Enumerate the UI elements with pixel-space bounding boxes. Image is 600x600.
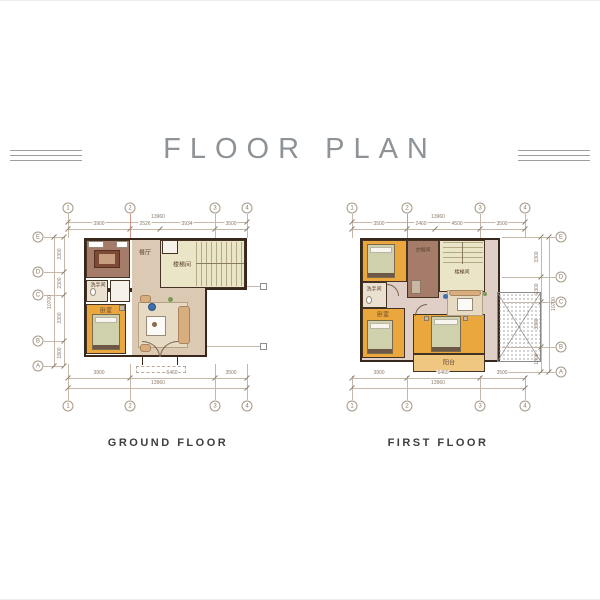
grid-marker: 4 [242, 401, 253, 412]
dimension-line [68, 388, 247, 389]
grid-marker: C [556, 297, 567, 308]
coffee-table [457, 298, 473, 311]
grid-marker: 1 [63, 401, 74, 412]
caption-ground-floor: GROUND FLOOR [88, 437, 248, 449]
plant [483, 292, 487, 296]
grid-marker: 4 [520, 401, 531, 412]
bed [92, 314, 120, 350]
dimension-line [502, 277, 555, 278]
bed [431, 316, 461, 352]
dimension-line [68, 378, 247, 379]
dimension-label: 3300 [57, 247, 63, 260]
grid-marker: 3 [475, 401, 486, 412]
grid-marker: A [33, 361, 44, 372]
dimension-label: 3500 [372, 221, 385, 227]
grid-marker: E [556, 232, 567, 243]
dimension-label: 13960 [150, 214, 166, 220]
first-floor-plan: 衣帽间 楼梯间 洗手间 卧室 阳台 [335, 192, 595, 427]
bed [367, 244, 395, 278]
stair-closet [162, 240, 178, 254]
dimension-label: 6460 [436, 370, 449, 376]
table-decor [152, 322, 157, 327]
sofa [178, 306, 190, 344]
top-border-line [0, 0, 600, 1]
toilet [90, 288, 96, 296]
grid-marker: D [556, 272, 567, 283]
dimension-label: 3300 [534, 317, 540, 330]
stair-treads [196, 242, 244, 286]
dimension-line [352, 229, 525, 230]
plant [168, 297, 173, 302]
leader-line [407, 376, 408, 400]
grid-marker: 1 [347, 401, 358, 412]
dimension-label: 3900 [92, 370, 105, 376]
grid-marker: A [556, 367, 567, 378]
nightstand [119, 305, 125, 311]
grid-marker: 1 [63, 203, 74, 214]
leader-line [207, 346, 260, 347]
dimension-label: 3300 [57, 311, 63, 324]
marker-square [260, 343, 267, 350]
toilet [366, 296, 372, 304]
leader-line [130, 364, 131, 400]
dimension-line [502, 347, 555, 348]
dimension-line [352, 378, 525, 379]
grid-marker: D [33, 267, 44, 278]
round-table [443, 294, 448, 299]
grid-marker: 1 [347, 203, 358, 214]
dimension-label: 10700 [551, 296, 557, 312]
leader-line [64, 237, 65, 366]
leader-line [541, 237, 542, 372]
sofa [449, 290, 481, 296]
dimension-label: 3500 [495, 221, 508, 227]
leader-line [549, 237, 550, 372]
grid-marker: 2 [125, 203, 136, 214]
nightstand [463, 316, 468, 321]
room-label-balcony: 阳台 [443, 358, 455, 367]
nightstand [424, 316, 429, 321]
storage-room [110, 280, 130, 302]
room-label-bathroom: 洗手间 [366, 286, 381, 293]
dimension-label: 13960 [430, 214, 446, 220]
grid-marker: 2 [402, 401, 413, 412]
page-title: FLOOR PLAN [0, 133, 600, 166]
marker-square [260, 283, 267, 290]
dimension-label: 3300 [534, 250, 540, 263]
floor-plan-sheet: FLOOR PLAN 楼梯间 餐厅 洗手间 卧室 [0, 0, 600, 600]
leader-line [247, 286, 260, 287]
dimension-label: 4500 [450, 221, 463, 227]
dimension-label: 3900 [92, 221, 105, 227]
dimension-label: 2300 [57, 276, 63, 289]
leader-line [68, 364, 69, 400]
stair-rail [196, 263, 244, 264]
room-label-wardrobe: 衣帽间 [415, 247, 430, 254]
bed [367, 320, 393, 354]
dimension-label: 10700 [47, 294, 53, 310]
dimension-label: 6460 [165, 370, 178, 376]
leader-line [247, 364, 248, 400]
leader-line [480, 376, 481, 400]
dimension-label: 3500 [495, 370, 508, 376]
caption-first-floor: FIRST FLOOR [358, 437, 518, 449]
dimension-tick [61, 363, 67, 369]
round-table [148, 303, 156, 311]
dimension-label: 3934 [180, 221, 193, 227]
dimension-label: 3500 [224, 221, 237, 227]
kitchen-sink [88, 241, 104, 248]
kitchen-table-top [99, 254, 115, 264]
room-label-stairs: 楼梯间 [173, 260, 191, 269]
dimension-label: 1800 [534, 352, 540, 365]
leader-line [54, 237, 55, 366]
grid-marker: B [556, 342, 567, 353]
dimension-label: 2526 [138, 221, 151, 227]
room-label-dining: 餐厅 [139, 248, 151, 257]
dimension-label: 2300 [534, 282, 540, 295]
room-label-bedroom: 卧室 [377, 310, 389, 319]
stair-rail [462, 242, 463, 264]
dimension-label: 13960 [430, 380, 446, 386]
leader-line [215, 364, 216, 400]
grid-marker: 4 [520, 203, 531, 214]
dimension-label: 13960 [150, 380, 166, 386]
dimension-label: 1800 [57, 346, 63, 359]
dimension-line [352, 388, 525, 389]
stair-treads [443, 242, 483, 264]
room-label-stairs: 楼梯间 [454, 269, 469, 276]
dimension-label: 2460 [414, 221, 427, 227]
dimension-line [502, 302, 555, 303]
grid-marker: 2 [402, 203, 413, 214]
kitchen-counter [116, 241, 128, 248]
title-rule-right [518, 150, 590, 165]
grid-marker: 3 [475, 203, 486, 214]
grid-marker: C [33, 290, 44, 301]
porch [142, 357, 178, 365]
bench [411, 280, 421, 294]
dimension-label: 3900 [372, 370, 385, 376]
grid-marker: E [33, 232, 44, 243]
armchair [140, 295, 151, 303]
grid-marker: 3 [210, 401, 221, 412]
ground-floor-plan: 楼梯间 餐厅 洗手间 卧室 12 [20, 192, 290, 427]
dimension-label: 3500 [224, 370, 237, 376]
grid-marker: 2 [125, 401, 136, 412]
grid-marker: 4 [242, 203, 253, 214]
room-label-bathroom: 洗手间 [90, 282, 105, 289]
grid-marker: 3 [210, 203, 221, 214]
grid-marker: B [33, 336, 44, 347]
